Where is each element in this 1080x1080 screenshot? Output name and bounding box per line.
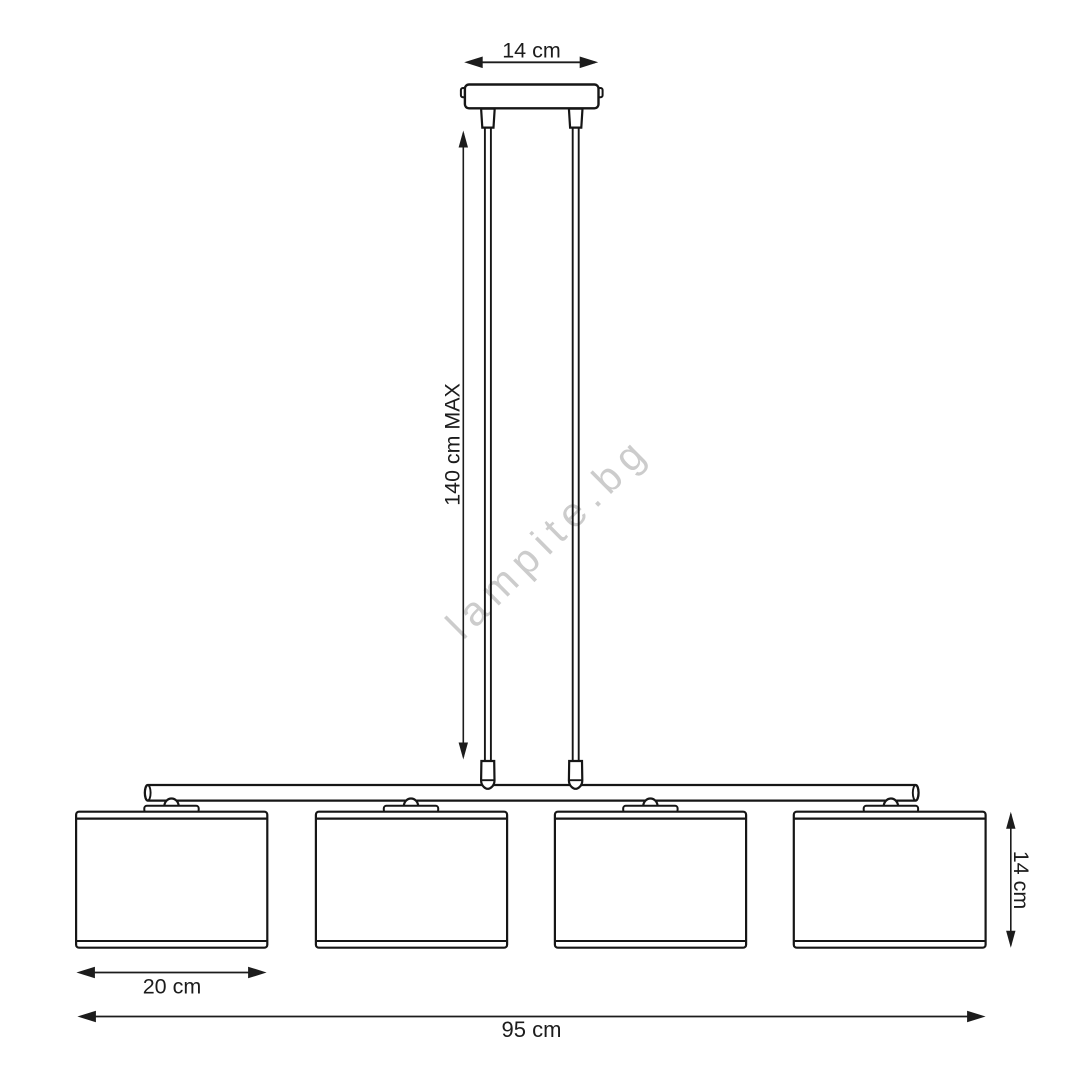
svg-text:95 cm: 95 cm bbox=[502, 1017, 562, 1042]
svg-text:140 cm MAX: 140 cm MAX bbox=[441, 383, 465, 505]
svg-text:14 cm: 14 cm bbox=[502, 39, 561, 63]
svg-text:14 cm: 14 cm bbox=[1009, 851, 1033, 910]
svg-text:20 cm: 20 cm bbox=[143, 975, 202, 999]
